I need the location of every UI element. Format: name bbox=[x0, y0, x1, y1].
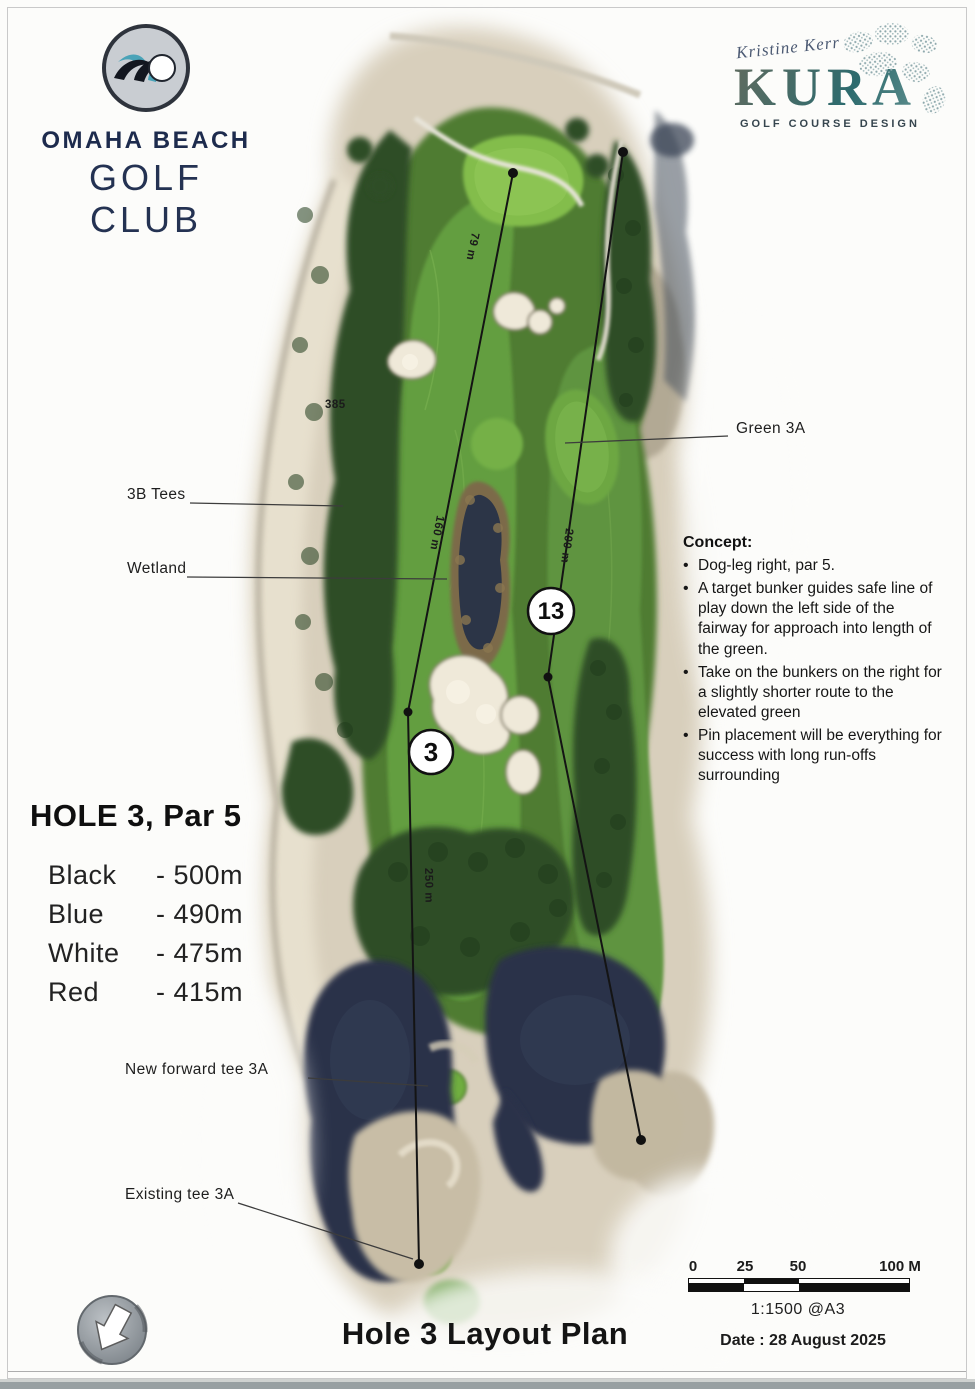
scale-block: 0 25 50 100 M 1:1500 @A3 Date : 28 Augus… bbox=[688, 1258, 918, 1350]
scale-tick: 0 bbox=[689, 1258, 697, 1275]
scan-edge-dark bbox=[0, 1382, 975, 1389]
tee-name: White bbox=[48, 938, 156, 969]
tee-name: Black bbox=[48, 860, 156, 891]
tee-row-white: White - 475m bbox=[48, 934, 243, 973]
callout-tees-3b: 3B Tees bbox=[127, 486, 186, 503]
hole-3-marker: 3 bbox=[424, 737, 438, 767]
scale-bar bbox=[688, 1278, 910, 1292]
north-arrow-block bbox=[72, 1290, 152, 1375]
tee-row-black: Black - 500m bbox=[48, 856, 243, 895]
designer-logo-block: Kristine Kerr KURA GOLF COURSE DESIGN bbox=[698, 24, 948, 130]
concept-heading: Concept: bbox=[683, 534, 945, 552]
concept-bullet: Take on the bunkers on the right for a s… bbox=[683, 663, 945, 723]
tee-distance: - 490m bbox=[156, 899, 243, 930]
callout-new-forward-tee: New forward tee 3A bbox=[125, 1061, 269, 1078]
hole-info-block: HOLE 3, Par 5 Black - 500m Blue - 490m W… bbox=[30, 798, 243, 1012]
tee-distance-list: Black - 500m Blue - 490m White - 475m Re… bbox=[48, 856, 243, 1012]
plan-title: Hole 3 Layout Plan bbox=[250, 1316, 720, 1352]
concept-bullet: Dog-leg right, par 5. bbox=[683, 556, 945, 576]
club-name-line2: GOLF CLUB bbox=[26, 157, 266, 241]
club-name-line1: OMAHA BEACH bbox=[26, 127, 266, 155]
tee-distance: - 475m bbox=[156, 938, 243, 969]
scale-ticks: 0 25 50 100 M bbox=[688, 1258, 918, 1276]
tee-distance: - 500m bbox=[156, 860, 243, 891]
tee-row-red: Red - 415m bbox=[48, 973, 243, 1012]
tee-row-blue: Blue - 490m bbox=[48, 895, 243, 934]
plan-date: Date : 28 August 2025 bbox=[688, 1332, 918, 1350]
callout-green-3a: Green 3A bbox=[736, 420, 806, 437]
kura-stones-icon bbox=[824, 20, 954, 140]
tee-name: Blue bbox=[48, 899, 156, 930]
callout-existing-tee: Existing tee 3A bbox=[125, 1186, 235, 1203]
concept-bullet-list: Dog-leg right, par 5. A target bunker gu… bbox=[683, 556, 945, 787]
distance-385: 385 bbox=[325, 399, 346, 411]
distance-250m: 250 m bbox=[422, 868, 435, 903]
tee-distance: - 415m bbox=[156, 977, 243, 1008]
hole-title: HOLE 3, Par 5 bbox=[30, 798, 243, 834]
callout-wetland: Wetland bbox=[127, 560, 186, 577]
tee-name: Red bbox=[48, 977, 156, 1008]
scale-tick: 50 bbox=[790, 1258, 807, 1275]
footer-separator bbox=[8, 1371, 967, 1372]
north-arrow-icon bbox=[72, 1290, 152, 1370]
concept-block: Concept: Dog-leg right, par 5. A target … bbox=[683, 534, 945, 790]
pin-dot bbox=[508, 168, 518, 178]
club-logo-block: OMAHA BEACH GOLF CLUB bbox=[26, 22, 266, 241]
scale-ratio: 1:1500 @A3 bbox=[688, 1301, 908, 1319]
scale-tick: 100 M bbox=[879, 1258, 921, 1275]
club-logo-icon bbox=[100, 22, 192, 114]
hole-13-marker: 13 bbox=[538, 598, 565, 625]
concept-bullet: A target bunker guides safe line of play… bbox=[683, 579, 945, 660]
wetland-pond bbox=[450, 481, 510, 667]
concept-bullet: Pin placement will be everything for suc… bbox=[683, 726, 945, 786]
scale-tick: 25 bbox=[737, 1258, 754, 1275]
